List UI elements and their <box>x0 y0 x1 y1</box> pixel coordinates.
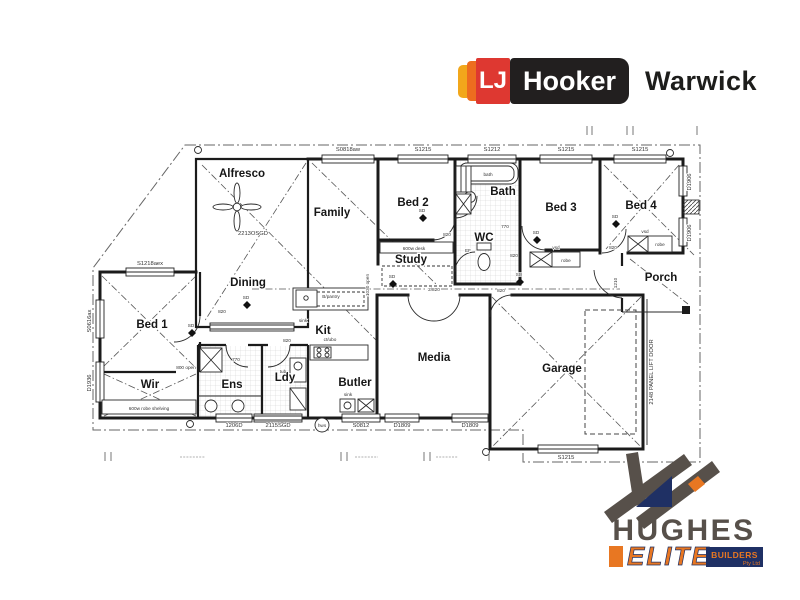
door-code: D1936 <box>87 374 93 391</box>
dim-label: 1210 <box>613 277 618 288</box>
elite-accent-block <box>609 546 623 567</box>
office-name: Warwick <box>645 66 757 97</box>
fixture-label: robe <box>655 242 665 247</box>
ens-shower-icon <box>200 348 222 372</box>
dim-label: 820 <box>510 253 518 258</box>
fixture-label: sink <box>344 392 353 397</box>
garage-door-code: 2148 PANEL LIFT DOOR <box>649 339 655 404</box>
builder-elite: ELITE <box>627 541 711 570</box>
door-code: D1809 <box>461 423 478 429</box>
dim-label: 820 <box>283 338 291 343</box>
fixture-label: 600w robe shelving <box>129 406 170 411</box>
room-label-garage: Garage <box>542 363 582 375</box>
dim-label: 820 <box>443 232 451 237</box>
fixture-label: bath <box>483 172 493 177</box>
fixture-label: sink <box>299 318 308 323</box>
fixture-label: tub <box>280 369 287 374</box>
fixture-label: vsd <box>641 229 649 234</box>
room-label-butler: Butler <box>338 377 372 389</box>
dim-label: 1030 open <box>365 274 370 297</box>
dim-label: 2/820 <box>428 287 440 292</box>
window-code: S1212 <box>484 147 501 153</box>
window-code: S1215 <box>558 147 575 153</box>
room-label-wc: WC <box>474 232 493 244</box>
room-label-bed2: Bed 2 <box>397 197 428 209</box>
sd-label: SD <box>188 323 195 328</box>
room-label-ens: Ens <box>221 379 242 391</box>
room-label-wir: Wir <box>141 379 160 391</box>
lj-yellow-stripe-icon <box>458 65 467 98</box>
hughes-elite-builders-logo: HUGHES ELITE BUILDERS Pty Ltd <box>596 450 768 570</box>
kitchen-bench <box>310 345 368 360</box>
sd-label: SD <box>516 272 523 277</box>
room-label-study: Study <box>395 254 428 266</box>
fixture-label: B/pantry <box>322 294 340 299</box>
dim-label: 820 <box>497 288 505 293</box>
ens-basin-icon <box>232 400 244 412</box>
listing-floorplan-page: SD SD SD SD SD SD SD Alfresco Family Bed… <box>0 0 800 600</box>
window-code: S1215 <box>415 147 432 153</box>
room-label-bath: Bath <box>490 186 516 198</box>
room-label-bed4: Bed 4 <box>625 200 657 212</box>
dim-label: 820 <box>609 245 617 250</box>
fixture-label: 600w desk <box>403 246 426 251</box>
sd-label: SD <box>533 230 540 235</box>
fixture-label: vsd <box>552 245 560 250</box>
dim-label: 770 <box>501 224 509 229</box>
panel-lift-door-outline <box>585 310 636 434</box>
lj-orange-stripe-icon <box>467 61 476 101</box>
window-code: S0812 <box>353 423 370 429</box>
room-label-kit: Kit <box>315 325 331 337</box>
room-label-bed1: Bed 1 <box>136 319 168 331</box>
lj-hooker-logo: LJ Hooker Warwick <box>458 58 757 104</box>
door-code: D1906 <box>687 173 693 190</box>
bed3-robe-icon <box>530 252 580 267</box>
sd-label: SD <box>612 214 619 219</box>
room-label-family: Family <box>314 207 351 219</box>
fixture-label: robe <box>561 258 571 263</box>
butler-sink-icon <box>340 399 374 412</box>
window-code: S1218aex <box>137 261 163 267</box>
smoke-detectors: SD SD SD SD SD SD SD <box>188 208 620 337</box>
hooker-wordmark: Hooker <box>510 58 629 104</box>
door-code: D1809 <box>393 423 410 429</box>
window-code: S1215 <box>632 147 649 153</box>
room-label-dining: Dining <box>230 277 266 289</box>
dim-label: 770 <box>232 357 240 362</box>
ceiling-fan-icon <box>213 183 261 231</box>
window-code: S0818aw <box>336 147 361 153</box>
sd-label: SD <box>243 295 250 300</box>
fixture-label: ct/ubo <box>324 337 337 342</box>
room-label-media: Media <box>418 352 451 364</box>
room-label-alfresco: Alfresco <box>219 168 265 180</box>
room-label-bed3: Bed 3 <box>545 202 576 214</box>
fixture-label: EF <box>465 248 471 253</box>
dim-label: 820 <box>218 309 226 314</box>
window-code: 1206D <box>225 423 242 429</box>
pty-label: Pty Ltd <box>743 561 760 567</box>
bed2-robe-icon <box>456 166 471 214</box>
ens-basin-icon <box>205 400 217 412</box>
builders-label: BUILDERS <box>711 550 758 560</box>
bed4-robe-icon <box>628 236 672 252</box>
room-label-porch: Porch <box>645 272 678 284</box>
toilet-icon <box>477 243 491 271</box>
lj-monogram: LJ <box>476 58 510 104</box>
dim-label: 800 open <box>176 365 196 370</box>
door-code: D1906 <box>687 224 693 241</box>
door-code: 2115SGD <box>265 423 290 429</box>
door-code: 2213OSGD <box>238 231 268 237</box>
sd-label: SD <box>389 274 396 279</box>
fixture-label: hws <box>318 423 327 428</box>
window-code: S0616ax <box>87 309 93 332</box>
kitchen-island <box>293 288 368 310</box>
window-code: S1215 <box>558 455 575 461</box>
